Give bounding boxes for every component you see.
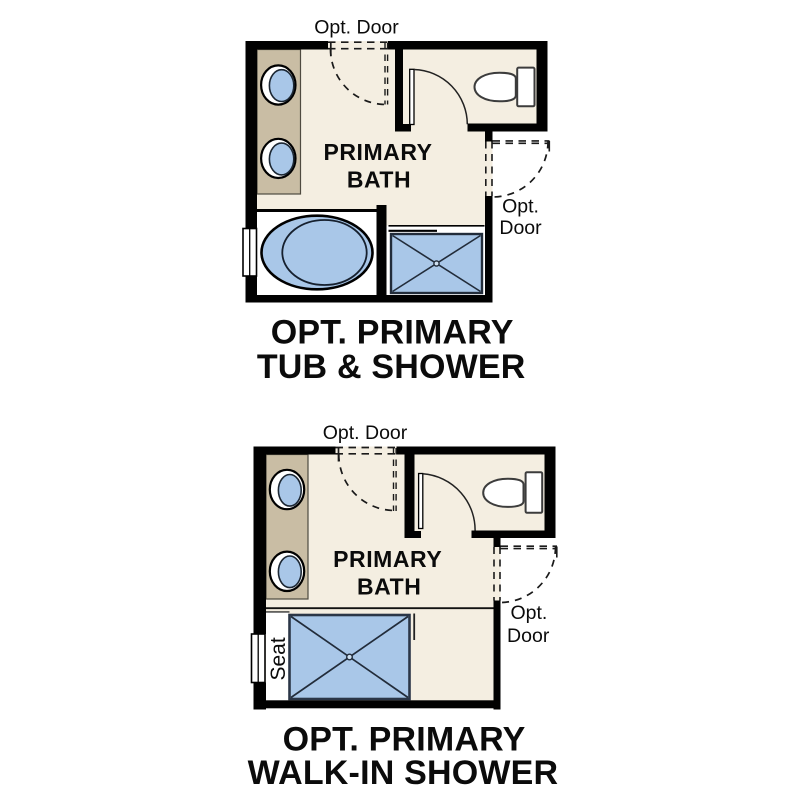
svg-text:WALK-IN SHOWER: WALK-IN SHOWER: [248, 754, 559, 792]
svg-text:BATH: BATH: [347, 166, 411, 192]
svg-text:Opt.: Opt.: [510, 602, 547, 624]
svg-text:Door: Door: [507, 625, 550, 647]
svg-text:Opt. Door: Opt. Door: [323, 422, 408, 444]
svg-text:PRIMARY: PRIMARY: [333, 546, 442, 572]
svg-text:Opt. Door: Opt. Door: [314, 17, 399, 39]
svg-text:Seat: Seat: [267, 637, 290, 680]
svg-text:Door: Door: [499, 217, 542, 239]
svg-text:OPT. PRIMARY: OPT. PRIMARY: [271, 313, 514, 351]
svg-text:Opt.: Opt.: [502, 195, 539, 217]
svg-text:BATH: BATH: [357, 573, 421, 599]
svg-text:PRIMARY: PRIMARY: [323, 139, 432, 165]
svg-text:TUB & SHOWER: TUB & SHOWER: [257, 348, 526, 386]
svg-text:OPT. PRIMARY: OPT. PRIMARY: [283, 721, 526, 759]
